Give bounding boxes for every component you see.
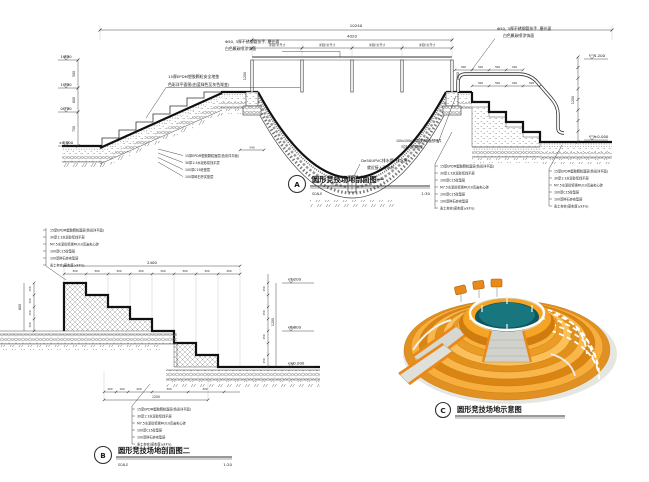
stairs-right — [472, 92, 612, 164]
dim-footing: 540 — [249, 146, 254, 150]
detail-tag: A — [294, 180, 300, 189]
elevation-label: ±0.000 — [290, 361, 305, 366]
dim-rise: 150 — [262, 358, 266, 363]
rail-note: 详见栏杆尺寸 — [369, 43, 385, 47]
layer-label: 100厚碎石夯实垫层 — [185, 174, 213, 179]
dim-rise: 150 — [262, 286, 266, 291]
front-stair — [483, 330, 531, 362]
layer-label: M7.5水泥砂浆砌MU10页岩实心砖 — [440, 185, 490, 190]
layer-label: 30厚1:3水泥砂浆找平层 — [50, 235, 85, 240]
elevation-label: 0.750 — [60, 106, 72, 111]
layer-label: 素土夯实(密实度≥93%) — [440, 206, 475, 211]
elevation-label: 0.600 — [290, 325, 302, 330]
dim-step: 300 — [160, 269, 165, 273]
dim-rise: 150 — [28, 298, 32, 303]
arena-render — [399, 279, 617, 404]
dim-segment: 750 — [72, 126, 76, 132]
layer-label: 100厚C15砼垫层 — [185, 167, 210, 172]
layer-label: 15厚EPDM塑胶颗粒面层(色彩详平面) — [50, 228, 104, 233]
scale-word: SCALE — [118, 463, 128, 467]
dim-label: 300 — [202, 387, 207, 391]
dimensions-right: 1200 1.200 ±0.000 — [571, 53, 609, 144]
dim-step: 300 — [512, 65, 517, 69]
arena-3d-view: C 圆形竞技场地示意图 — [385, 262, 635, 422]
drawing-title: 圆形竞技场地剖面图二 — [118, 446, 190, 455]
callout-text: De50UPVC排水管, 排水箅 — [361, 158, 408, 163]
ground-band-upper — [0, 331, 177, 367]
detail-tag: C — [440, 406, 445, 415]
layer-label: 100厚C15砼垫层 — [137, 428, 162, 433]
layer-label: M7.5水泥砂浆砌MU10页岩实心砖 — [554, 183, 604, 188]
detail-tag: B — [100, 451, 105, 460]
layer-label: 100厚碎石夯实垫层 — [554, 197, 582, 202]
drawing-sheet: 10240 4020 详见栏杆尺寸 详见栏杆尺寸 详见栏杆尺寸 详见栏杆尺寸 1… — [0, 0, 649, 482]
dim-step: 300 — [116, 269, 121, 273]
callout-text: 100x100x10厚镀锌钢板预埋件 — [396, 138, 442, 143]
title-block-a: A 圆形竞技场地剖面图一 SCALE 1:30 — [289, 175, 431, 196]
rail-note: 详见栏杆尺寸 — [319, 43, 335, 47]
callout-text: 色彩详平面图(由蓝绿色至灰色渐变) — [168, 82, 230, 87]
scale-word: SCALE — [312, 192, 322, 196]
dim-label: 200 — [136, 387, 141, 391]
dimensions-right: 150 150 150 150 1200 1.200 0.600 ±0.000 — [262, 274, 314, 368]
title-block-b: B 圆形竞技场地剖面图二 SCALE 1:20 — [95, 446, 233, 467]
elevation-label: ±0.000 — [594, 134, 609, 139]
layer-label: M7.5水泥砂浆砌MU10页岩实心砖 — [137, 421, 187, 426]
scale-value: 1:20 — [223, 462, 232, 467]
layer-label: 100厚碎石夯实垫层 — [137, 435, 165, 440]
layer-label: 15厚EPDM塑胶颗粒面层(色彩详平面) — [185, 153, 239, 158]
section-b-drawing: 15厚EPDM塑胶颗粒面层(色彩详平面) 30厚1:3水泥砂浆找平层 M7.5水… — [0, 222, 330, 482]
dim-step: 300 — [138, 269, 143, 273]
layer-list-bottom: 15厚EPDM塑胶颗粒面层(色彩详平面) 30厚1:3水泥砂浆找平层 M7.5水… — [132, 384, 191, 447]
dim-total-right: 1200 — [271, 318, 275, 326]
layer-label: 30厚1:3水泥砂浆找平层 — [554, 176, 589, 181]
layer-label: 素土夯实(密实度≥93%) — [554, 204, 589, 209]
dim-rail-span: 4020 — [347, 34, 357, 39]
dim-step: 300 — [94, 269, 99, 273]
layer-label: 30厚1:3水泥砂浆找平层 — [185, 160, 220, 165]
dim-step: 300 — [182, 269, 187, 273]
pit-floor — [479, 303, 535, 328]
layer-label: 15厚EPDM塑胶颗粒面层(色彩详平面) — [554, 169, 608, 174]
dim-overall: 2400 — [147, 260, 157, 265]
drawing-title: 圆形竞技场地示意图 — [457, 405, 522, 414]
dim-step: 300 — [226, 269, 231, 273]
elevation-label: 1.200 — [290, 277, 302, 282]
ground-left — [62, 146, 102, 168]
callout-text: 就近接入雨水井 — [367, 165, 394, 170]
dim-rise: 150 — [262, 310, 266, 315]
layer-label: 30厚1:3水泥砂浆找平层 — [440, 171, 475, 176]
dim-step: 300 — [495, 65, 500, 69]
rail-note: 详见栏杆尺寸 — [419, 43, 435, 47]
dimensions-left: 1.850 1.350 0.750 ±0.000 500 600 750 — [58, 54, 80, 148]
dim-step: 300 — [529, 81, 534, 85]
title-block-c: C 圆形竞技场地示意图 — [436, 403, 566, 419]
layer-label: 30厚1:3水泥砂浆找平层 — [137, 414, 172, 419]
section-a-drawing: 10240 4020 详见栏杆尺寸 详见栏杆尺寸 详见栏杆尺寸 详见栏杆尺寸 1… — [0, 0, 649, 215]
dim-post-height: 1200 — [243, 72, 247, 80]
callout-rail-left: Φ50, 3厚不锈钢管扶手, 磨光面 白色氟碳喷涂饰面 — [225, 39, 340, 57]
dim-total-left: 600 — [18, 304, 22, 310]
dim-step: 300 — [461, 65, 466, 69]
layer-label: M7.5水泥砂浆砌MU10页岩实心砖 — [50, 242, 100, 247]
guard-railing — [243, 57, 461, 115]
layer-list-toe: 15厚EPDM塑胶颗粒面层(色彩详平面) 30厚1:3水泥砂浆找平层 100厚C… — [158, 149, 239, 179]
dim-rise: 150 — [262, 334, 266, 339]
callout-text: Φ50, 3厚不锈钢管扶手, 磨光面 — [225, 39, 279, 44]
ground-band-lower — [166, 370, 320, 387]
callout-text: 15厚EPDM塑胶颗粒安全地垫 — [168, 74, 219, 79]
layer-label: 100厚碎石夯实垫层 — [50, 256, 78, 261]
dim-segment: 600 — [72, 97, 76, 103]
layer-label: 100厚C15砼垫层 — [554, 190, 579, 195]
layer-label: 15厚EPDM塑胶颗粒面层(色彩详平面) — [440, 164, 494, 169]
layer-label: 素土夯实(密实度≥93%) — [50, 263, 85, 268]
dim-overall: 10240 — [350, 23, 363, 28]
dim-step: 300 — [495, 81, 500, 85]
dim-rise: 150 — [28, 310, 32, 315]
drawing-title: 圆形竞技场地剖面图一 — [312, 175, 385, 184]
bowl-section — [258, 92, 446, 207]
elevation-label: 1.200 — [594, 53, 606, 58]
elevation-label: 1.350 — [60, 82, 72, 87]
dim-total: 1200 — [152, 395, 160, 399]
callout-text: 白色氟碳喷涂饰面 — [225, 46, 256, 51]
callout-text: Φ50, 3厚不锈钢管扶手, 磨光面 — [497, 26, 551, 31]
layer-label: 100厚碎石夯实垫层 — [440, 199, 468, 204]
dim-label: 300 — [166, 387, 171, 391]
dim-step: 300 — [512, 81, 517, 85]
callout-text: 与扶手焊接固定 — [401, 144, 424, 149]
dim-segment: 500 — [72, 71, 76, 77]
layer-label: 100厚C15砼垫层 — [440, 192, 465, 197]
dim-step: 300 — [204, 269, 209, 273]
dim-label: 100 — [119, 387, 124, 391]
elevation-label: 1.850 — [60, 54, 72, 59]
scale-value: 1:30 — [421, 191, 430, 196]
layer-label: 100厚C15砼垫层 — [440, 178, 465, 183]
dim-rise: 150 — [28, 286, 32, 291]
dimensions-left: 150 150 150 150 600 — [18, 282, 35, 333]
dim-label: 100 — [107, 387, 112, 391]
dim-post-height: 1200 — [456, 72, 460, 80]
dim-step: 300 — [72, 269, 77, 273]
layer-label: 15厚EPDM塑胶颗粒面层(色彩详平面) — [137, 407, 191, 412]
dim-step: 300 — [478, 65, 483, 69]
dim-post-height: 1200 — [571, 96, 575, 104]
elevation-label: ±0.000 — [59, 140, 74, 145]
callout-text: 白色氟碳喷涂饰面 — [503, 33, 534, 38]
dim-step: 300 — [478, 81, 483, 85]
layer-label: 100厚C15砼垫层 — [50, 249, 75, 254]
dim-rise: 150 — [28, 322, 32, 327]
post-footing-right — [443, 92, 461, 115]
